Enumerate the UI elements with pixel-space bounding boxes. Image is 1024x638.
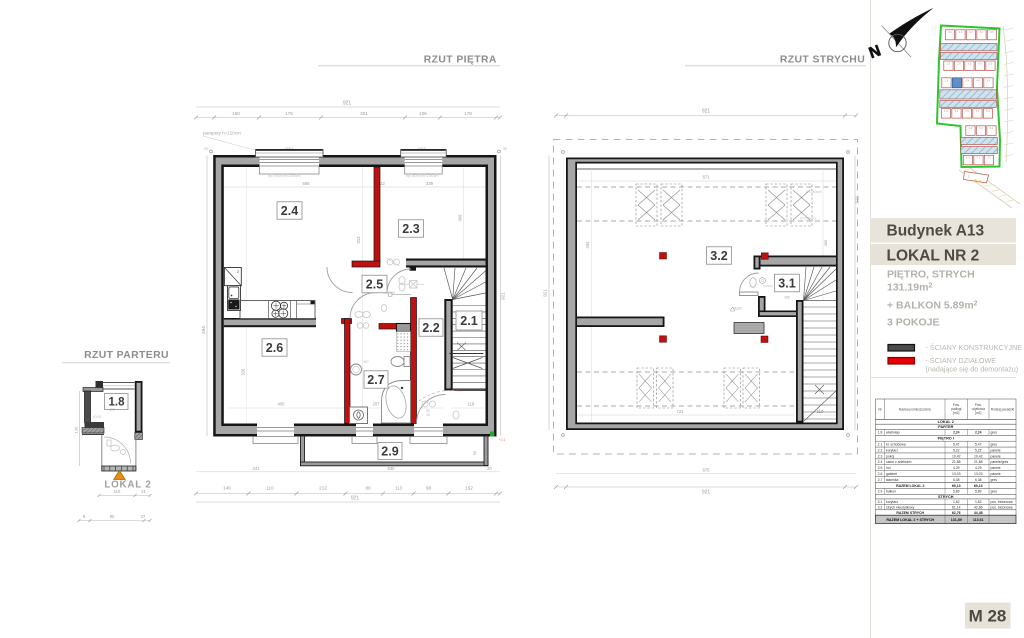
svg-text:2.4: 2.4 [878, 460, 883, 464]
svg-text:4.2: 4.2 [959, 30, 963, 34]
svg-text:875: 875 [703, 468, 711, 473]
svg-text:3.1: 3.1 [878, 500, 883, 504]
svg-text:PIĘTRO, STRYCH: PIĘTRO, STRYCH [887, 268, 975, 280]
svg-text:2.9: 2.9 [878, 490, 883, 494]
svg-text:gres: gres [991, 478, 998, 482]
svg-text:2.1: 2.1 [977, 156, 981, 160]
svg-text:łazienka: łazienka [886, 478, 899, 482]
svg-text:21,88: 21,88 [974, 460, 983, 464]
svg-text:12: 12 [380, 181, 385, 186]
svg-text:+ BALKON 5.89m2: + BALKON 5.89m2 [887, 299, 978, 311]
svg-text:25: 25 [426, 413, 430, 417]
svg-text:STRYCH: STRYCH [938, 495, 954, 499]
svg-text:90: 90 [110, 514, 115, 519]
svg-text:2,24: 2,24 [975, 431, 982, 435]
svg-text:RZUT PARTERU: RZUT PARTERU [84, 350, 169, 361]
svg-text:131,89: 131,89 [951, 518, 962, 522]
svg-text:panele/gres: panele/gres [991, 460, 1009, 464]
svg-text:6,38: 6,38 [953, 478, 960, 482]
svg-text:4.5: 4.5 [990, 30, 994, 34]
svg-text:911: 911 [855, 196, 860, 204]
svg-text:98: 98 [426, 486, 432, 491]
svg-text:2.1: 2.1 [460, 314, 477, 328]
svg-text:1,62: 1,62 [975, 500, 982, 504]
svg-text:strych nieużytkowy: strych nieużytkowy [886, 505, 915, 509]
svg-text:LOKAL NR 2: LOKAL NR 2 [887, 248, 980, 265]
svg-text:21: 21 [141, 489, 146, 494]
svg-text:131.19m2: 131.19m2 [887, 282, 932, 294]
svg-text:pokój: pokój [886, 454, 894, 458]
svg-text:korytarz: korytarz [886, 500, 898, 504]
svg-text:1.8: 1.8 [878, 431, 883, 435]
svg-text:2,24: 2,24 [953, 431, 960, 435]
svg-text:RAZEM LOKAL 2: RAZEM LOKAL 2 [896, 484, 924, 488]
svg-text:2.7: 2.7 [878, 478, 883, 482]
svg-text:61,14: 61,14 [952, 505, 961, 509]
svg-text:4.1: 4.1 [948, 30, 952, 34]
svg-text:4.3: 4.3 [969, 30, 973, 34]
svg-text:207: 207 [373, 402, 381, 407]
svg-text:568: 568 [303, 181, 311, 186]
svg-text:405: 405 [278, 402, 286, 407]
svg-text:- ŚCIANY KONSTRUKCYJNE: - ŚCIANY KONSTRUKCYJNE [926, 343, 1023, 352]
svg-text:95: 95 [473, 451, 477, 455]
svg-text:176: 176 [285, 111, 293, 116]
svg-text:3.1: 3.1 [987, 156, 991, 160]
svg-text:4.3: 4.3 [976, 109, 980, 113]
svg-text:2.6: 2.6 [266, 341, 283, 355]
svg-text:113: 113 [395, 486, 403, 491]
svg-text:Budynek A13: Budynek A13 [887, 223, 985, 240]
svg-text:2.4: 2.4 [955, 79, 959, 83]
svg-text:871: 871 [703, 175, 711, 180]
svg-text:3.2: 3.2 [878, 505, 883, 509]
svg-text:Nazwa pomieszczenia: Nazwa pomieszczenia [899, 408, 931, 412]
svg-text:RAZEM LOKAL 2 + STRYCH: RAZEM LOKAL 2 + STRYCH [886, 518, 934, 522]
svg-text:921: 921 [351, 496, 360, 502]
svg-text:2.7: 2.7 [367, 373, 384, 387]
svg-text:gabinet: gabinet [886, 472, 897, 476]
svg-text:1.1: 1.1 [966, 156, 970, 160]
svg-text:+5,20: +5,20 [732, 307, 741, 311]
svg-text:2.9: 2.9 [381, 445, 398, 459]
svg-text:pos. betonowa: pos. betonowa [991, 505, 1013, 509]
svg-text:balkon: balkon [886, 490, 896, 494]
svg-text:110: 110 [266, 486, 274, 491]
svg-text:307: 307 [363, 360, 369, 364]
svg-text:panele: panele [991, 466, 1001, 470]
svg-text:4.5: 4.5 [978, 62, 982, 66]
svg-text:3.4: 3.4 [966, 79, 970, 83]
svg-text:h=140cm: h=140cm [806, 190, 822, 194]
svg-text:69,13: 69,13 [974, 484, 983, 488]
svg-text:62,76: 62,76 [952, 511, 961, 515]
svg-text:parapety h=110cm: parapety h=110cm [203, 131, 241, 136]
svg-text:13,03: 13,03 [974, 472, 983, 476]
svg-text:M 28: M 28 [969, 607, 1007, 626]
svg-text:5,47: 5,47 [975, 442, 982, 446]
svg-text:3.2: 3.2 [710, 249, 727, 263]
svg-text:2.3: 2.3 [878, 454, 883, 458]
svg-text:21,88: 21,88 [952, 460, 961, 464]
svg-text:2: 2 [237, 270, 239, 274]
svg-text:hp=90cm/h=230cm: hp=90cm/h=230cm [268, 174, 301, 178]
svg-text:PARTER: PARTER [938, 425, 954, 429]
svg-text:106: 106 [419, 111, 427, 116]
svg-text:368: 368 [458, 214, 463, 222]
svg-text:921: 921 [343, 101, 352, 107]
svg-text:80: 80 [365, 486, 371, 491]
svg-text:5,89: 5,89 [953, 490, 960, 494]
svg-text:hol: hol [886, 466, 891, 470]
svg-text:5.3: 5.3 [986, 109, 990, 113]
svg-text:339: 339 [426, 181, 434, 186]
svg-text:5,47: 5,47 [953, 442, 960, 446]
svg-text:3.3: 3.3 [965, 109, 969, 113]
svg-text:2.3: 2.3 [402, 222, 419, 236]
svg-text:2.4: 2.4 [281, 204, 298, 218]
svg-text:130: 130 [74, 426, 79, 433]
svg-text:4.4: 4.4 [976, 79, 980, 83]
svg-text:365: 365 [824, 240, 828, 246]
svg-text:korytarz: korytarz [886, 448, 898, 452]
svg-text:44,48: 44,48 [974, 511, 983, 515]
svg-text:42,86: 42,86 [974, 505, 983, 509]
svg-text:RAZEM STRYCH: RAZEM STRYCH [896, 511, 924, 515]
svg-text:1.3: 1.3 [944, 109, 948, 113]
svg-text:921: 921 [702, 109, 711, 115]
svg-text:2.5: 2.5 [878, 466, 883, 470]
svg-text:2.3: 2.3 [955, 109, 959, 113]
svg-text:pos. betonowa: pos. betonowa [991, 500, 1013, 504]
svg-text:110: 110 [817, 409, 824, 414]
svg-text:10,42: 10,42 [952, 454, 961, 458]
svg-text:146: 146 [223, 486, 231, 491]
svg-text:2.5: 2.5 [957, 62, 961, 66]
svg-text:3.5: 3.5 [968, 62, 972, 66]
svg-text:13,03: 13,03 [952, 472, 961, 476]
svg-text:8: 8 [83, 514, 86, 519]
svg-text:1,62: 1,62 [953, 500, 960, 504]
svg-text:2.2: 2.2 [422, 321, 439, 335]
svg-text:326: 326 [241, 368, 246, 376]
svg-text:kl. schodowa: kl. schodowa [886, 442, 906, 446]
svg-text:165: 165 [109, 408, 114, 412]
svg-text:118: 118 [468, 402, 475, 407]
svg-text:113,61: 113,61 [973, 518, 984, 522]
svg-text:1.2: 1.2 [969, 126, 973, 130]
svg-text:630: 630 [388, 466, 396, 471]
svg-text:20: 20 [487, 466, 492, 471]
svg-text:10,42: 10,42 [974, 454, 983, 458]
svg-text:1.5: 1.5 [947, 62, 951, 66]
svg-text:panele: panele [991, 454, 1001, 458]
svg-text:h=220cm: h=220cm [800, 217, 816, 221]
svg-text:1.4: 1.4 [945, 79, 949, 83]
svg-text:[m2]: [m2] [953, 411, 959, 415]
svg-text:5.4: 5.4 [987, 79, 991, 83]
svg-text:panele: panele [991, 472, 1001, 476]
svg-text:2.1: 2.1 [878, 442, 883, 446]
svg-text:2.5: 2.5 [366, 278, 383, 292]
svg-text:5,89: 5,89 [975, 490, 982, 494]
svg-text:gres: gres [991, 431, 998, 435]
svg-text:3 POKOJE: 3 POKOJE [887, 317, 940, 329]
svg-text:110: 110 [114, 489, 121, 494]
svg-text:+0,1: +0,1 [499, 438, 506, 442]
svg-text:05: 05 [204, 147, 208, 151]
svg-text:921: 921 [501, 292, 506, 300]
svg-text:±0,00: ±0,00 [93, 415, 102, 419]
svg-text:494: 494 [201, 326, 206, 334]
svg-text:921: 921 [543, 289, 548, 297]
svg-text:4,29: 4,29 [975, 466, 982, 470]
svg-text:921: 921 [702, 490, 711, 496]
svg-text:(nadające się do demontażu): (nadające się do demontażu) [926, 364, 1019, 373]
svg-text:LOKAL 2: LOKAL 2 [938, 420, 954, 424]
svg-text:721: 721 [677, 409, 685, 414]
svg-text:5,22: 5,22 [975, 448, 982, 452]
svg-text:4.4: 4.4 [980, 30, 984, 34]
svg-text:panele: panele [991, 448, 1001, 452]
svg-text:3.1: 3.1 [778, 277, 795, 291]
svg-text:5.5: 5.5 [989, 62, 993, 66]
svg-text:4,29: 4,29 [953, 466, 960, 470]
svg-text:gres: gres [991, 490, 998, 494]
svg-text:gres: gres [991, 442, 998, 446]
svg-text:162: 162 [465, 486, 473, 491]
svg-text:hp=80cm/h=230cm: hp=80cm/h=230cm [406, 174, 439, 178]
svg-text:241: 241 [253, 466, 261, 471]
svg-text:5,22: 5,22 [953, 448, 960, 452]
svg-text:05: 05 [503, 147, 507, 151]
svg-text:301: 301 [360, 111, 368, 116]
svg-text:N: N [867, 42, 883, 62]
svg-text:[m2]: [m2] [975, 411, 981, 415]
svg-text:2.2: 2.2 [979, 126, 983, 130]
svg-text:179: 179 [464, 111, 472, 116]
svg-text:150: 150 [232, 111, 240, 116]
svg-text:102: 102 [784, 296, 790, 300]
svg-text:Rodzaj posadzki: Rodzaj posadzki [991, 408, 1015, 412]
svg-text:3.2: 3.2 [990, 126, 994, 130]
svg-text:wiatrołap: wiatrołap [886, 431, 900, 435]
svg-text:PIĘTRO I: PIĘTRO I [938, 437, 954, 441]
svg-text:27: 27 [141, 514, 146, 519]
svg-text:6,38: 6,38 [975, 478, 982, 482]
svg-text:313: 313 [356, 236, 361, 244]
svg-text:80/200: 80/200 [763, 284, 773, 288]
svg-text:494: 494 [585, 241, 590, 249]
svg-text:212: 212 [319, 486, 327, 491]
svg-text:RZUT STRYCHU: RZUT STRYCHU [780, 55, 865, 66]
svg-text:2.6: 2.6 [878, 472, 883, 476]
svg-text:2.2: 2.2 [878, 448, 883, 452]
svg-text:RZUT PIĘTRA: RZUT PIĘTRA [424, 55, 497, 66]
svg-text:salon z aneksem: salon z aneksem [886, 460, 912, 464]
svg-text:69,13: 69,13 [952, 484, 961, 488]
